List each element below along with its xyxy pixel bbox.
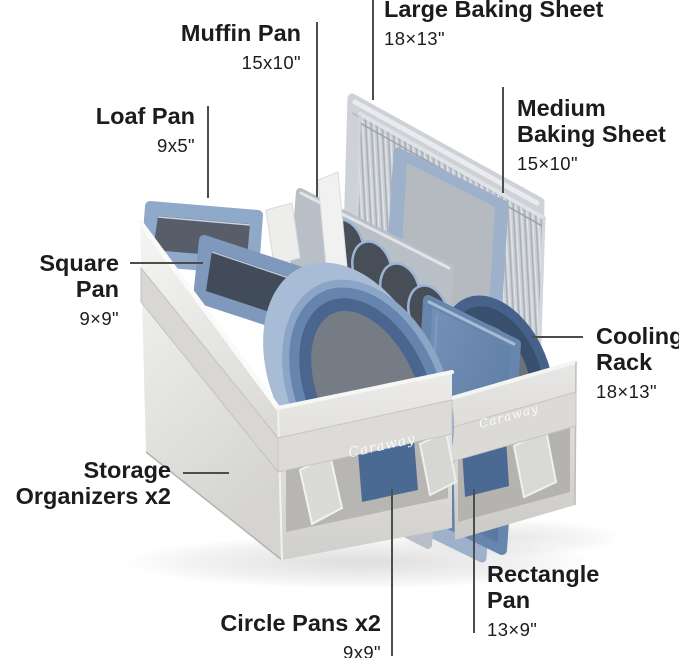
callout-rectangle-pan: Rectangle Pan 13×9" <box>487 561 607 641</box>
callout-title: Rectangle Pan <box>487 561 607 613</box>
callout-title: Circle Pans x2 <box>220 610 381 636</box>
callout-line-storage-organizers <box>183 472 229 474</box>
callout-dims: 13×9" <box>487 619 607 641</box>
callout-line-circle-pans <box>391 489 393 656</box>
callout-large-baking-sheet: Large Baking Sheet 18×13" <box>384 0 603 50</box>
callout-square-pan: Square Pan 9×9" <box>0 250 119 330</box>
callout-muffin-pan: Muffin Pan 15x10" <box>181 20 301 74</box>
callout-title: Square Pan <box>0 250 119 302</box>
callout-dims: 15x10" <box>181 52 301 74</box>
callout-title: Medium Baking Sheet <box>517 95 677 147</box>
callout-loaf-pan: Loaf Pan 9x5" <box>96 103 195 157</box>
callout-title: Loaf Pan <box>96 103 195 129</box>
callout-line-large-baking-sheet <box>372 0 374 100</box>
callout-title: Large Baking Sheet <box>384 0 603 22</box>
callout-title: Cooling Rack <box>596 323 679 375</box>
callout-line-muffin-pan <box>316 22 318 197</box>
callout-line-cooling-rack <box>532 336 583 338</box>
callout-dims: 9x9" <box>220 642 381 658</box>
callout-dims: 9x5" <box>96 135 195 157</box>
callout-line-loaf-pan <box>207 106 209 198</box>
callout-medium-baking-sheet: Medium Baking Sheet 15×10" <box>517 95 677 175</box>
callout-title: Muffin Pan <box>181 20 301 46</box>
callout-dims: 9×9" <box>0 308 119 330</box>
callout-line-medium-baking-sheet <box>502 87 504 193</box>
callout-title: Storage Organizers x2 <box>0 457 171 509</box>
product-callout-diagram: Caraway <box>0 0 679 658</box>
callout-cooling-rack: Cooling Rack 18×13" <box>596 323 679 403</box>
callout-line-square-pan <box>130 262 203 264</box>
callout-dims: 18×13" <box>596 381 679 403</box>
callout-dims: 15×10" <box>517 153 677 175</box>
callout-line-rectangle-pan <box>473 489 475 633</box>
callout-dims: 18×13" <box>384 28 603 50</box>
callout-circle-pans: Circle Pans x2 9x9" <box>220 610 381 658</box>
callout-storage-organizers: Storage Organizers x2 <box>0 457 171 509</box>
